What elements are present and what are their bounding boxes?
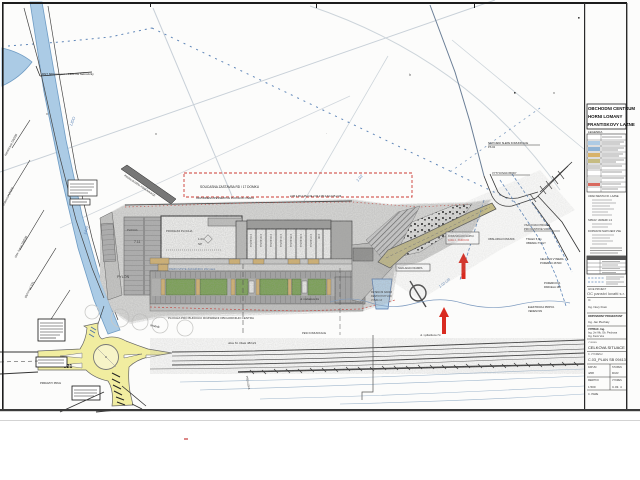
svg-text:x: x — [553, 90, 555, 95]
svg-text:DATUM: DATUM — [588, 366, 596, 369]
svg-text:LEGENDA: LEGENDA — [588, 130, 602, 134]
svg-text:HORNI LOMANY: HORNI LOMANY — [588, 114, 622, 119]
svg-text:x: x — [46, 111, 48, 116]
svg-text:h: h — [409, 72, 411, 77]
svg-text:CELKOVA VYMERA: CELKOVA VYMERA — [540, 257, 564, 261]
svg-text:DN? 600 mm por. r.1981 na Netr: DN? 600 mm por. r.1981 na Netrovicky — [42, 72, 94, 76]
svg-text:VYKRES: VYKRES — [588, 342, 597, 344]
svg-text:DUR: DUR — [612, 371, 619, 375]
svg-text:C. PARE: C. PARE — [588, 392, 598, 396]
svg-text:ul. vydlazdena 7m: ul. vydlazdena 7m — [420, 333, 441, 337]
svg-text:Ing. Jiri Vlk, Ob. Pechova: Ing. Jiri Vlk, Ob. Pechova — [588, 331, 618, 335]
svg-text:OBCHODNI CENTRUM: OBCHODNI CENTRUM — [588, 106, 635, 111]
svg-text:PARCELA 180: PARCELA 180 — [544, 285, 561, 289]
svg-text:ELEKTRICKA PRIPOJ.: ELEKTRICKA PRIPOJ. — [528, 305, 555, 309]
svg-text:URAD MESTA FR. LAZNE: URAD MESTA FR. LAZNE — [588, 194, 619, 198]
svg-text:SOUCASNA ZASTAVBA RD / 17 DOMK: SOUCASNA ZASTAVBA RD / 17 DOMKU — [200, 185, 260, 189]
svg-text:IC: IC — [588, 298, 591, 302]
svg-text:x: x — [155, 131, 157, 136]
svg-text:ODPOVEDNY PROJEKTANT: ODPOVEDNY PROJEKTANT — [588, 314, 623, 318]
svg-text:C. VYKRESU: C. VYKRESU — [588, 353, 603, 356]
svg-text:PESI KOMUNIKACE: PESI KOMUNIKACE — [302, 331, 326, 335]
svg-text:C.03. 4: C.03. 4 — [612, 385, 622, 389]
svg-text:2.05 2.06 2.05 2.04 2.03: 2.05 2.06 2.05 2.04 2.03 2.05 2.04 2.05 … — [290, 194, 342, 198]
svg-text:Ing. Kuze Ves: Ing. Kuze Ves — [588, 334, 605, 338]
svg-text:MERITKO: MERITKO — [588, 379, 599, 382]
svg-text:NAPOJENI SLEPE KOMUNIKACE: NAPOJENI SLEPE KOMUNIKACE — [488, 141, 528, 145]
svg-text:PRIDAVNY PRUH: PRIDAVNY PRUH — [40, 381, 61, 385]
svg-text:STUPEN: STUPEN — [612, 366, 622, 369]
svg-text:PS 02: PS 02 — [488, 145, 496, 149]
svg-text:VEDENI NN: VEDENI NN — [528, 309, 542, 313]
svg-text:CELKOVA SITUACE: CELKOVA SITUACE — [588, 345, 625, 350]
svg-text:OBRADLI TICHY: OBRADLI TICHY — [526, 241, 546, 245]
svg-text:.: . — [326, 130, 327, 135]
svg-text:4/08: 4/08 — [588, 371, 594, 375]
svg-text:FRANTISKOVY LAZNE: FRANTISKOVY LAZNE — [588, 122, 635, 127]
svg-text:C.03_PLAN SB 09413: C.03_PLAN SB 09413 — [588, 358, 626, 362]
svg-text:VYKRES: VYKRES — [612, 379, 622, 382]
svg-text:ODVODNENI ZPEVNENYCH PLOCH DO: ODVODNENI ZPEVNENYCH PLOCH DO VSAKU — [196, 196, 254, 200]
svg-text:VYPRAC. Ing.: VYPRAC. Ing. — [588, 327, 605, 331]
svg-text:ul. roubalova 2m: ul. roubalova 2m — [300, 297, 319, 301]
svg-text:1:500: 1:500 — [588, 385, 596, 389]
svg-text:DOPRAVNI NAPOJENI VSE: DOPRAVNI NAPOJENI VSE — [588, 229, 621, 233]
svg-text:VYTYCOVACI BODY: VYTYCOVACI BODY — [492, 171, 517, 175]
svg-text:SPRAV. URZEMI 1:2: SPRAV. URZEMI 1:2 — [588, 218, 613, 222]
svg-text:POZEMKOVA: POZEMKOVA — [544, 281, 561, 285]
svg-text:Ing. Jan Plechaty: Ing. Jan Plechaty — [588, 320, 610, 324]
svg-text:TSILEC 5,0m: TSILEC 5,0m — [526, 237, 542, 241]
svg-text:POZEMKU 48 500: POZEMKU 48 500 — [540, 261, 562, 265]
svg-text:OC panstvi lovatti s.r.: OC panstvi lovatti s.r. — [587, 291, 625, 296]
svg-text:Ing. Novy Fram: Ing. Novy Fram — [588, 305, 608, 309]
